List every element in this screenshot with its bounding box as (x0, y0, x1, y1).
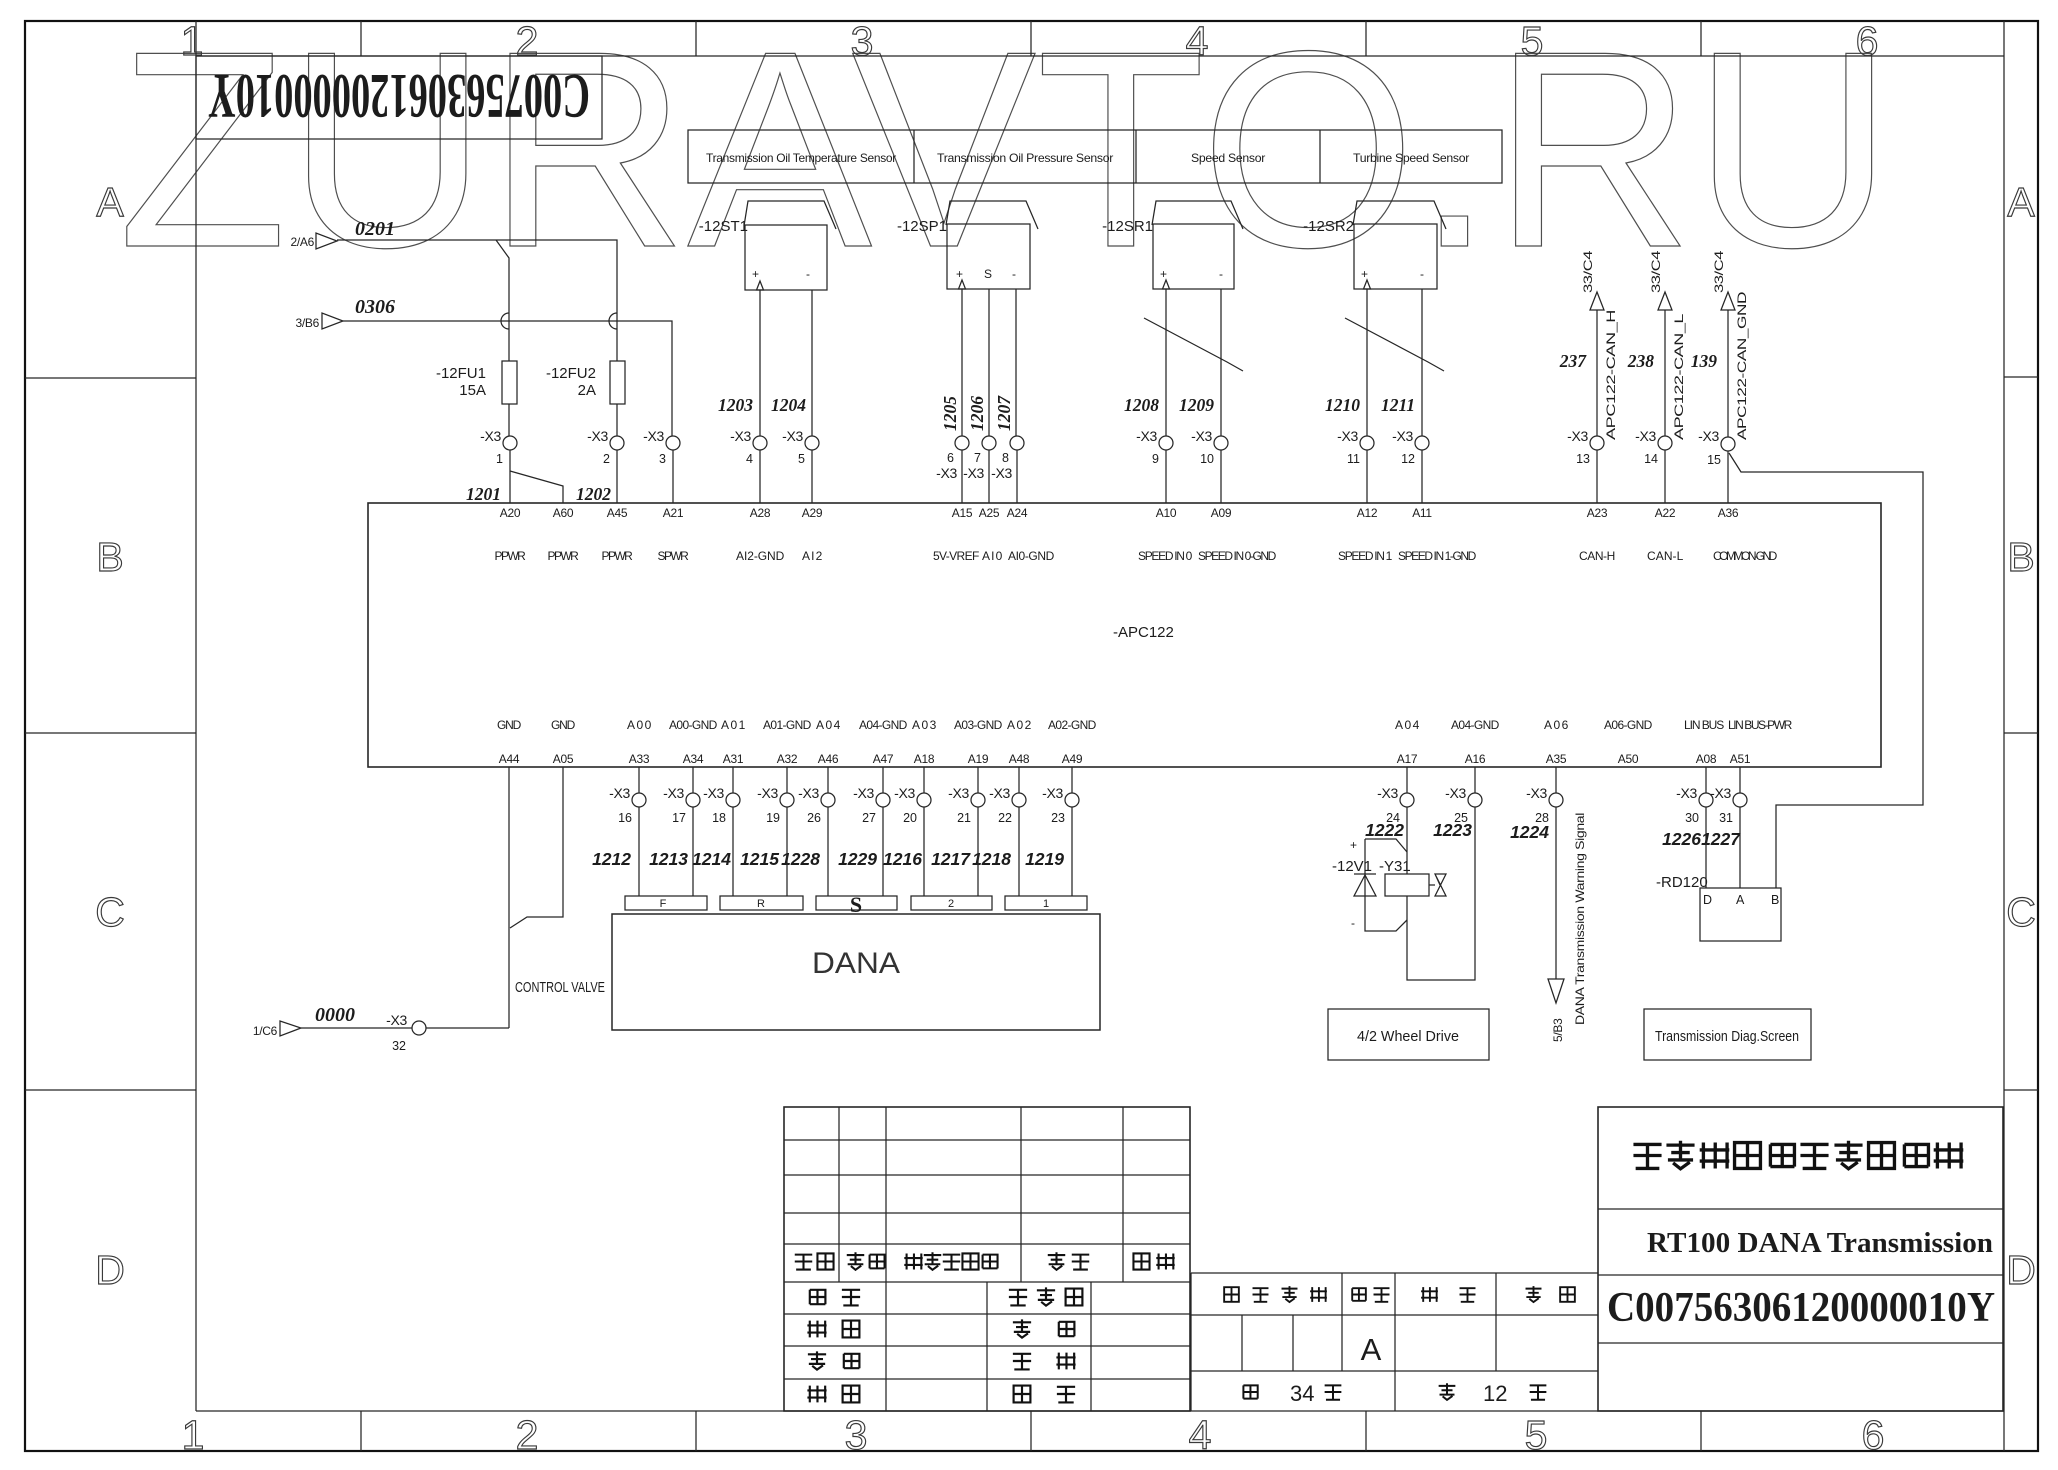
svg-text:A06: A06 (1544, 718, 1569, 732)
svg-text:RT100 DANA Transmission: RT100 DANA Transmission (1647, 1228, 1993, 1259)
svg-text:11: 11 (1347, 452, 1360, 466)
svg-text:-X3: -X3 (1136, 428, 1157, 444)
svg-text:-APC122: -APC122 (1113, 624, 1174, 641)
svg-text:12: 12 (1401, 452, 1415, 466)
svg-text:A18: A18 (914, 752, 935, 766)
svg-text:A15: A15 (952, 506, 973, 520)
svg-text:A24: A24 (1007, 506, 1028, 520)
svg-text:SPEED IN 0-GND: SPEED IN 0-GND (1198, 549, 1277, 563)
svg-text:19: 19 (766, 811, 780, 825)
svg-text:-X3: -X3 (730, 428, 751, 444)
svg-text:Turbine Speed Sensor: Turbine Speed Sensor (1353, 151, 1469, 165)
svg-text:1205: 1205 (940, 396, 960, 431)
svg-text:1226: 1226 (1662, 829, 1701, 849)
svg-text:A: A (2007, 179, 2035, 225)
svg-text:1: 1 (181, 18, 204, 64)
svg-text:10: 10 (1200, 452, 1214, 466)
svg-text:A09: A09 (1211, 506, 1232, 520)
svg-text:CAN-L: CAN-L (1647, 549, 1684, 563)
svg-text:A05: A05 (553, 752, 574, 766)
svg-text:SPEED IN 1-GND: SPEED IN 1-GND (1398, 549, 1477, 563)
svg-text:3/B6: 3/B6 (296, 316, 320, 330)
svg-text:1: 1 (1043, 898, 1049, 910)
svg-text:-X3: -X3 (1445, 785, 1466, 801)
svg-text:Speed Sensor: Speed Sensor (1191, 151, 1265, 165)
svg-text:-X3: -X3 (991, 465, 1012, 481)
svg-text:CAN-H: CAN-H (1579, 549, 1615, 563)
svg-text:6: 6 (1862, 1412, 1885, 1458)
svg-text:7: 7 (974, 451, 981, 465)
svg-text:A10: A10 (1156, 506, 1177, 520)
svg-text:C: C (95, 889, 125, 935)
svg-text:A31: A31 (723, 752, 744, 766)
svg-text:A33: A33 (629, 752, 650, 766)
svg-text:A23: A23 (1587, 506, 1608, 520)
svg-text:A: A (96, 179, 124, 225)
svg-text:1201: 1201 (466, 484, 501, 504)
svg-text:A34: A34 (683, 752, 704, 766)
svg-text:DANA: DANA (812, 947, 900, 980)
svg-text:A48: A48 (1009, 752, 1030, 766)
svg-text:34: 34 (1290, 1381, 1314, 1406)
svg-text:SPWR: SPWR (658, 549, 690, 563)
svg-text:1217: 1217 (931, 849, 971, 869)
svg-text:A36: A36 (1718, 506, 1739, 520)
svg-text:2: 2 (603, 452, 610, 466)
svg-text:2/A6: 2/A6 (291, 235, 315, 249)
svg-text:A29: A29 (802, 506, 823, 520)
svg-text:237: 237 (1559, 351, 1588, 371)
svg-text:A03: A03 (912, 718, 937, 732)
svg-text:A20: A20 (500, 506, 521, 520)
svg-text:17: 17 (672, 811, 686, 825)
svg-text:1207: 1207 (994, 395, 1014, 431)
svg-text:A03-GND: A03-GND (954, 718, 1003, 732)
svg-text:-X3: -X3 (1635, 428, 1656, 444)
svg-text:A04: A04 (816, 718, 841, 732)
svg-text:1212: 1212 (592, 849, 631, 869)
svg-text:A: A (1736, 893, 1745, 907)
svg-text:A28: A28 (750, 506, 771, 520)
svg-text:1224: 1224 (1510, 822, 1549, 842)
svg-text:A19: A19 (968, 752, 989, 766)
svg-text:LIN BUS: LIN BUS (1684, 718, 1724, 732)
svg-text:13: 13 (1576, 452, 1590, 466)
svg-text:-X3: -X3 (587, 428, 608, 444)
svg-text:C00756306120000010Y: C00756306120000010Y (1607, 1285, 1995, 1331)
svg-text:A16: A16 (1465, 752, 1486, 766)
svg-text:-12V1: -12V1 (1332, 858, 1372, 875)
svg-text:A00: A00 (627, 718, 652, 732)
svg-text:C: C (2006, 889, 2036, 935)
svg-text:-Y31: -Y31 (1379, 858, 1411, 875)
svg-text:-X3: -X3 (757, 785, 778, 801)
svg-text:27: 27 (862, 811, 876, 825)
svg-text:-X3: -X3 (1526, 785, 1547, 801)
svg-text:SPEED IN 0: SPEED IN 0 (1138, 549, 1193, 563)
svg-text:-: - (806, 267, 810, 281)
svg-text:1208: 1208 (1124, 395, 1159, 415)
svg-text:-X3: -X3 (1392, 428, 1413, 444)
svg-text:-X3: -X3 (894, 785, 915, 801)
svg-text:32: 32 (392, 1039, 406, 1053)
svg-text:0306: 0306 (355, 296, 395, 318)
svg-text:A60: A60 (553, 506, 574, 520)
svg-text:A01-GND: A01-GND (763, 718, 812, 732)
svg-text:APC122-CAN_H: APC122-CAN_H (1604, 310, 1618, 440)
svg-text:23: 23 (1051, 811, 1065, 825)
svg-text:A17: A17 (1397, 752, 1418, 766)
svg-text:PPWR: PPWR (548, 549, 580, 563)
svg-text:-X3: -X3 (1676, 785, 1697, 801)
svg-text:1202: 1202 (576, 484, 611, 504)
svg-text:-X3: -X3 (1042, 785, 1063, 801)
svg-text:COMMON-GND: COMMON-GND (1713, 549, 1778, 563)
svg-text:33/C4: 33/C4 (1581, 250, 1595, 293)
svg-text:238: 238 (1627, 351, 1655, 371)
svg-text:C00756306120000010Y: C00756306120000010Y (208, 61, 590, 132)
svg-text:-X3: -X3 (480, 428, 501, 444)
svg-text:-X3: -X3 (782, 428, 803, 444)
svg-text:5: 5 (1521, 18, 1544, 64)
svg-text:-12SR2: -12SR2 (1303, 218, 1354, 235)
svg-text:1223: 1223 (1433, 820, 1472, 840)
svg-text:8: 8 (1002, 451, 1009, 465)
svg-text:A25: A25 (979, 506, 1000, 520)
svg-text:LIN BUS-PWR: LIN BUS-PWR (1728, 718, 1793, 732)
svg-text:AI0: AI0 (982, 549, 1003, 563)
svg-text:5: 5 (798, 452, 805, 466)
svg-text:21: 21 (957, 811, 971, 825)
svg-text:5: 5 (1525, 1412, 1548, 1458)
svg-text:-12FU1: -12FU1 (436, 365, 486, 382)
svg-text:15A: 15A (459, 382, 486, 399)
svg-text:A00-GND: A00-GND (669, 718, 718, 732)
svg-text:3: 3 (845, 1412, 868, 1458)
svg-text:1214: 1214 (692, 849, 731, 869)
svg-text:9: 9 (1152, 452, 1159, 466)
svg-text:A45: A45 (607, 506, 628, 520)
svg-text:14: 14 (1644, 452, 1658, 466)
svg-text:0201: 0201 (355, 218, 395, 240)
svg-text:4/2 Wheel Drive: 4/2 Wheel Drive (1357, 1029, 1459, 1045)
svg-text:A04-GND: A04-GND (1451, 718, 1500, 732)
svg-text:1222: 1222 (1365, 820, 1404, 840)
svg-text:-X3: -X3 (609, 785, 630, 801)
svg-text:PPWR: PPWR (602, 549, 634, 563)
svg-text:-: - (1012, 267, 1016, 281)
svg-text:-X3: -X3 (386, 1012, 407, 1028)
svg-text:6: 6 (1856, 18, 1879, 64)
svg-text:3: 3 (851, 18, 874, 64)
svg-text:1204: 1204 (771, 395, 806, 415)
svg-text:AI2-GND: AI2-GND (736, 549, 785, 563)
svg-text:1/C6: 1/C6 (253, 1024, 278, 1038)
svg-text:Transmission Oil Pressure Sens: Transmission Oil Pressure Sensor (937, 151, 1113, 165)
svg-text:-: - (1420, 267, 1424, 281)
svg-text:1213: 1213 (649, 849, 688, 869)
svg-text:-X3: -X3 (703, 785, 724, 801)
svg-text:1206: 1206 (967, 396, 987, 431)
svg-text:APC122-CAN_GND: APC122-CAN_GND (1735, 291, 1749, 440)
svg-text:A11: A11 (1412, 506, 1432, 520)
svg-text:APC122-CAN_L: APC122-CAN_L (1672, 313, 1686, 440)
svg-text:A01: A01 (721, 718, 746, 732)
svg-text:A51: A51 (1730, 752, 1751, 766)
svg-text:CONTROL VALVE: CONTROL VALVE (515, 979, 605, 996)
svg-text:A08: A08 (1696, 752, 1717, 766)
svg-text:DANA Transmission Warning Sign: DANA Transmission Warning Signal (1573, 813, 1587, 1025)
svg-text:16: 16 (618, 811, 632, 825)
svg-text:12: 12 (1483, 1381, 1507, 1406)
svg-text:22: 22 (998, 811, 1012, 825)
svg-text:6: 6 (947, 451, 954, 465)
svg-text:Transmission Diag.Screen: Transmission Diag.Screen (1655, 1029, 1799, 1045)
svg-text:20: 20 (903, 811, 917, 825)
svg-text:-12FU2: -12FU2 (546, 365, 596, 382)
svg-text:-X3: -X3 (798, 785, 819, 801)
svg-text:1: 1 (182, 1412, 205, 1458)
svg-text:2: 2 (516, 1412, 539, 1458)
svg-text:AI0-GND: AI0-GND (1008, 549, 1055, 563)
svg-text:2A: 2A (578, 382, 596, 399)
svg-text:A21: A21 (663, 506, 684, 520)
svg-text:A44: A44 (499, 752, 520, 766)
svg-text:1229: 1229 (838, 849, 877, 869)
svg-text:1210: 1210 (1325, 395, 1360, 415)
svg-text:-X3: -X3 (1377, 785, 1398, 801)
svg-text:1216: 1216 (883, 849, 922, 869)
svg-text:0000: 0000 (315, 1004, 355, 1026)
svg-text:A22: A22 (1655, 506, 1676, 520)
svg-text:26: 26 (807, 811, 821, 825)
svg-text:A02-GND: A02-GND (1048, 718, 1097, 732)
svg-text:-12SR1: -12SR1 (1102, 218, 1153, 235)
svg-text:-X3: -X3 (643, 428, 664, 444)
svg-text:4: 4 (1186, 18, 1209, 64)
svg-text:-X3: -X3 (1191, 428, 1212, 444)
svg-text:33/C4: 33/C4 (1649, 250, 1663, 293)
svg-text:-X3: -X3 (1710, 785, 1731, 801)
svg-text:2: 2 (948, 898, 954, 910)
svg-text:1211: 1211 (1381, 395, 1415, 415)
svg-text:1219: 1219 (1025, 849, 1064, 869)
svg-text:2: 2 (516, 18, 539, 64)
svg-text:15: 15 (1707, 453, 1721, 467)
svg-text:33/C4: 33/C4 (1712, 250, 1726, 293)
svg-text:B: B (2007, 534, 2034, 580)
svg-text:5V-VREF: 5V-VREF (933, 549, 979, 563)
svg-text:SPEED IN 1: SPEED IN 1 (1338, 549, 1393, 563)
svg-text:-X3: -X3 (936, 465, 957, 481)
svg-text:A: A (1361, 1332, 1382, 1367)
svg-text:A04: A04 (1395, 718, 1420, 732)
svg-text:A46: A46 (818, 752, 839, 766)
svg-text:1215: 1215 (740, 849, 779, 869)
svg-text:B: B (1771, 893, 1779, 907)
svg-text:18: 18 (712, 811, 726, 825)
svg-text:A35: A35 (1546, 752, 1567, 766)
svg-text:1203: 1203 (718, 395, 753, 415)
svg-text:A49: A49 (1062, 752, 1083, 766)
svg-text:3: 3 (659, 452, 666, 466)
svg-text:PPWR: PPWR (495, 549, 527, 563)
svg-text:B: B (96, 534, 123, 580)
svg-text:-X3: -X3 (989, 785, 1010, 801)
svg-text:1209: 1209 (1179, 395, 1214, 415)
svg-text:Transmission Oil Temperature S: Transmission Oil Temperature Sensor (706, 151, 896, 165)
svg-text:+: + (752, 267, 759, 281)
svg-text:S: S (984, 267, 992, 281)
svg-text:F: F (660, 898, 667, 910)
svg-text:139: 139 (1691, 351, 1718, 371)
svg-text:+: + (1350, 838, 1357, 852)
svg-text:5/B3: 5/B3 (1551, 1018, 1565, 1042)
svg-text:R: R (757, 898, 765, 910)
svg-text:-X3: -X3 (948, 785, 969, 801)
svg-text:4: 4 (1189, 1412, 1212, 1458)
svg-text:-X3: -X3 (1567, 428, 1588, 444)
svg-text:D: D (2006, 1247, 2036, 1293)
svg-text:-X3: -X3 (853, 785, 874, 801)
svg-text:-X3: -X3 (1698, 428, 1719, 444)
svg-text:-12ST1: -12ST1 (699, 218, 748, 235)
svg-text:A12: A12 (1357, 506, 1378, 520)
svg-text:-12SP1: -12SP1 (897, 218, 947, 235)
svg-text:31: 31 (1719, 811, 1733, 825)
svg-text:30: 30 (1685, 811, 1699, 825)
svg-text:A06-GND: A06-GND (1604, 718, 1653, 732)
svg-text:GND: GND (551, 718, 576, 732)
svg-text:GND: GND (497, 718, 522, 732)
svg-text:1: 1 (496, 452, 503, 466)
svg-text:A04-GND: A04-GND (859, 718, 908, 732)
svg-text:-X3: -X3 (663, 785, 684, 801)
svg-text:-: - (1219, 267, 1223, 281)
svg-text:D: D (1703, 893, 1712, 907)
svg-text:-X3: -X3 (963, 465, 984, 481)
svg-text:AI2: AI2 (802, 549, 823, 563)
svg-text:4: 4 (746, 452, 753, 466)
svg-text:A47: A47 (873, 752, 894, 766)
svg-text:A02: A02 (1007, 718, 1032, 732)
svg-text:A32: A32 (777, 752, 798, 766)
svg-text:1227: 1227 (1701, 829, 1741, 849)
svg-text:-X3: -X3 (1337, 428, 1358, 444)
svg-text:A50: A50 (1618, 752, 1639, 766)
svg-text:D: D (95, 1247, 125, 1293)
svg-text:-: - (1351, 916, 1355, 930)
